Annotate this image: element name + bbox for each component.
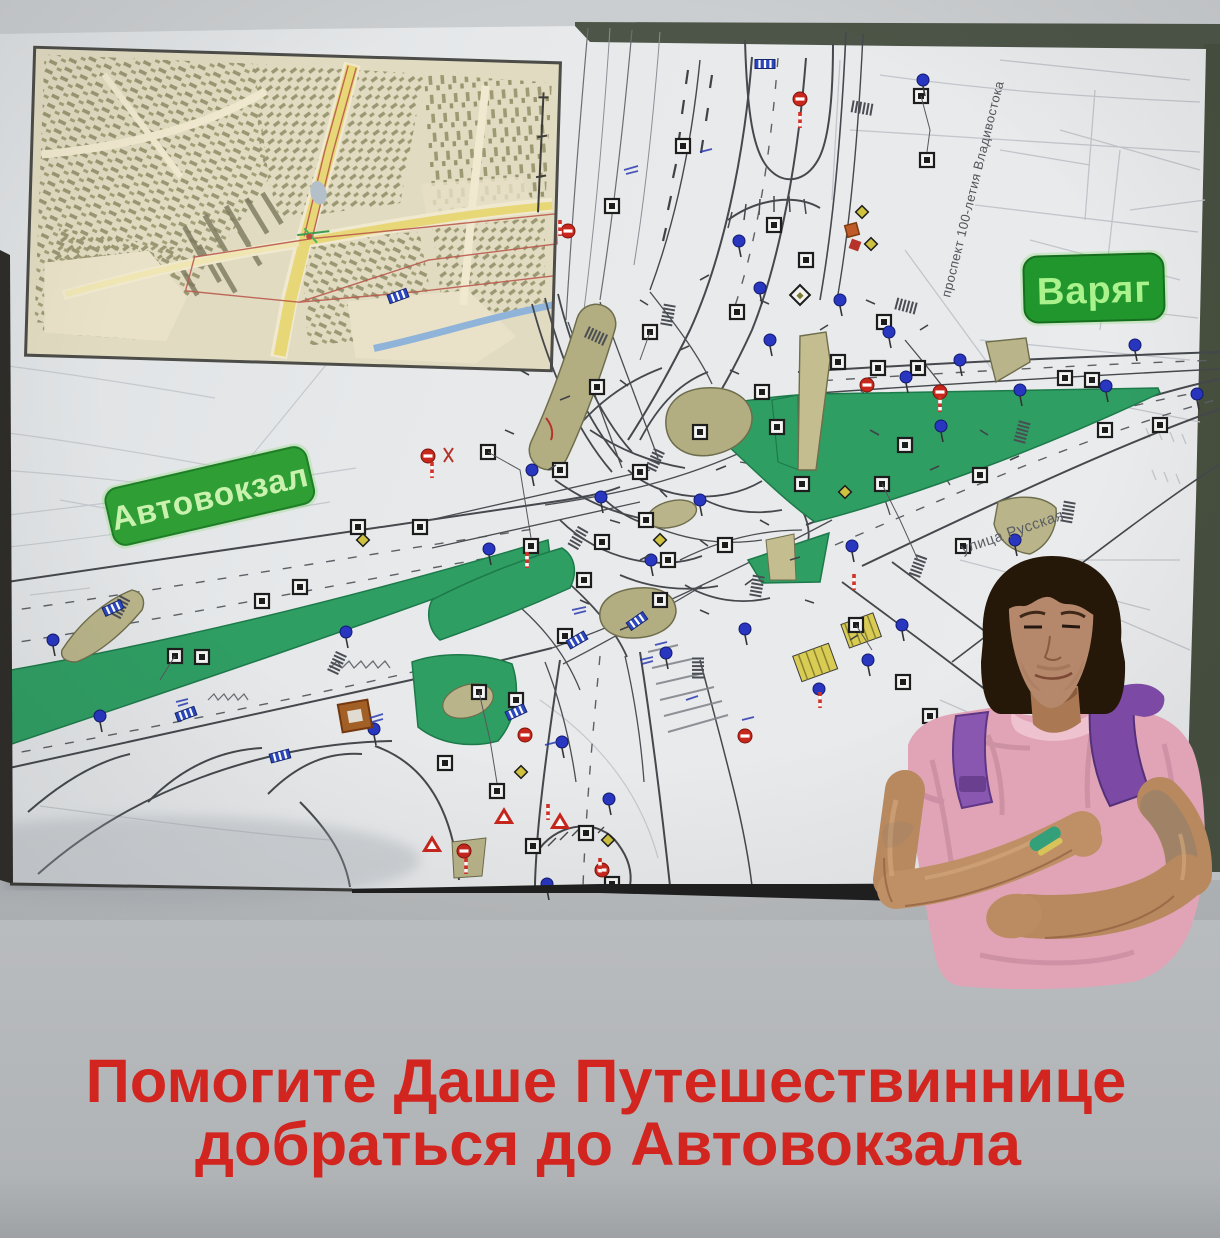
svg-text:добраться до Автовокзала: добраться до Автовокзала: [195, 1110, 1022, 1179]
svg-text:Варяг: Варяг: [1036, 269, 1151, 314]
svg-text:Помогите Даше Путешествиннице: Помогите Даше Путешествиннице: [86, 1047, 1127, 1116]
